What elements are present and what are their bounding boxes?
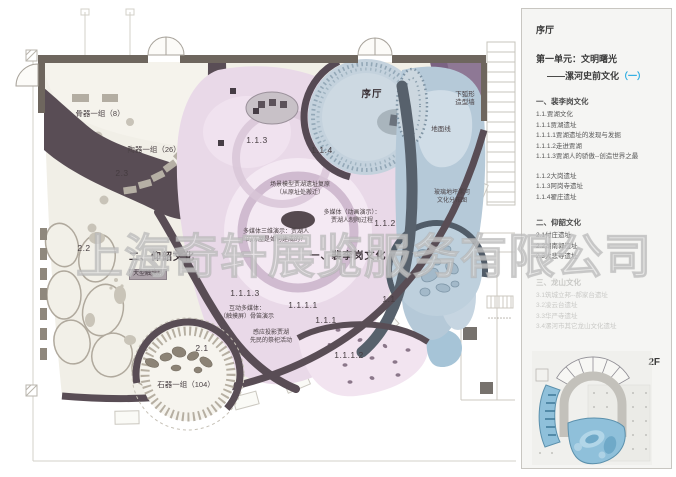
panel-subtitle-text: ——漯河史前文化 — [547, 71, 619, 81]
list-item: 1.1.贾湖文化 — [536, 110, 665, 121]
panel-unit-title: 第一单元：文明曙光 — [536, 52, 665, 65]
label-1-1-2: 1.1.2 — [374, 218, 395, 229]
label-glass-floor-map: 玻璃地坪漯河 文化分布图 — [434, 190, 470, 206]
list-item: 3.2凌云台遗址 — [536, 301, 665, 312]
section-heading: 二、仰韶文化 — [536, 217, 665, 228]
list-item: 1.1.2大岗遗址 — [536, 172, 665, 183]
label-1-1-1: 1.1.1 — [315, 315, 336, 326]
label-projection: 感应投影贾湖 先民的祭祀活动 — [250, 330, 292, 346]
label-bone-tools-group: 骨器一组（8） — [75, 109, 124, 119]
list-item: 3.1筑城立邦--郝家台遗址 — [536, 291, 665, 302]
label-multimedia-3d: 多媒体三维演示：贾湖人 的房屋是如何建成的？ — [243, 229, 309, 245]
corridor-block-1 — [463, 327, 477, 340]
list-item: 2.1付庄遗址 — [536, 231, 665, 242]
label-arc-wall: 下弧形 造型墙 — [455, 91, 475, 108]
label-yangshao-culture: 二、仰韶文化 — [129, 251, 195, 264]
list-item: 2.2湖南郭遗址 — [536, 242, 665, 253]
section-peiligang: 一、裴李岗文化 1.1.贾湖文化 1.1.1贾湖遗址 1.1.1.1贾湖遗址的发… — [536, 96, 665, 203]
minimap-2f — [530, 343, 656, 469]
minimap-small-room — [536, 369, 548, 381]
label-zone-2-3: 2.3 — [115, 168, 128, 179]
panel-subtitle-accent: （一） — [619, 71, 646, 81]
section-heading: 一、裴李岗文化 — [536, 96, 665, 107]
list-item: 1.1.1.2走进贾湖 — [536, 142, 665, 153]
corridor-dots — [488, 317, 511, 319]
section-heading: 三、龙山文化 — [536, 277, 665, 288]
stairs-right — [487, 42, 515, 205]
label-ground-line: 地面线 — [431, 126, 451, 134]
label-1-1-1-3: 1.1.1.3 — [230, 288, 260, 299]
label-scene-model: 场景模型贾湖遗址复原 （从原址处搬迁） — [270, 182, 330, 198]
label-pottery-group: 陶器一组（26） — [127, 145, 180, 155]
label-interactive-touchscreen: 互动多媒体： （触摸屏）骨笛演示 — [220, 306, 274, 322]
label-prelude-hall: 序厅 — [361, 89, 382, 101]
label-peiligang-culture: 一、裴李岗文化 — [310, 250, 387, 263]
list-item: 3.4漯河市其它龙山文化遗址 — [536, 322, 665, 333]
panel-hall-label: 序厅 — [536, 23, 665, 36]
label-zone-2-1: 2.1 — [195, 343, 208, 354]
corridor-block-2 — [480, 382, 493, 394]
label-touchscreen-box: 大型触摸屏 — [129, 269, 167, 280]
display-case-2 — [102, 94, 118, 102]
section-yangshao: 二、仰韶文化 2.1付庄遗址 2.2湖南郭遗址 2.3大悲寺遗址 — [536, 217, 665, 263]
list-item: 1.1.1.1贾湖遗址的发现与发掘 — [536, 131, 665, 142]
legend-panel: 序厅 第一单元：文明曙光 ——漯河史前文化（一） 一、裴李岗文化 1.1.贾湖文… — [521, 8, 672, 469]
label-1-1-1-2: 1.1.1.2 — [334, 350, 364, 361]
label-1-1-4: 1.1.4 — [311, 145, 332, 156]
central-exhibit — [281, 211, 315, 229]
section-longshan: 三、龙山文化 3.1筑城立邦--郝家台遗址 3.2凌云台遗址 3.3华严寺遗址 … — [536, 277, 665, 333]
list-item: 1.1.4翟庄遗址 — [536, 193, 665, 204]
label-1-1-3: 1.1.3 — [246, 135, 267, 146]
label-1-1-1-1: 1.1.1.1 — [288, 300, 318, 311]
display-case-1 — [72, 94, 89, 102]
label-stone-tools-group: 石器一组（104） — [157, 380, 215, 390]
label-1-1: 1.1 — [382, 294, 395, 305]
list-item: 1.1.1贾湖遗址 — [536, 121, 665, 132]
list-item: 3.3华严寺遗址 — [536, 312, 665, 323]
list-item: 1.1.3阿岗寺遗址 — [536, 182, 665, 193]
label-zone-2-2: 2.2 — [77, 243, 90, 254]
list-item: 1.1.1.3贾湖人的骄傲--创造世界之最 — [536, 152, 665, 163]
floor-plan: 骨器一组（8） 陶器一组（26） 2.3 2.2 二、仰韶文化 大型触摸屏 2.… — [0, 0, 520, 477]
label-multimedia-animation: 多媒体（动画演示）： 贾湖人制陶过程 — [323, 210, 380, 226]
list-item: 2.3大悲寺遗址 — [536, 252, 665, 263]
panel-unit-subtitle: ——漯河史前文化（一） — [547, 69, 665, 82]
exhibition-plan-page: 骨器一组（8） 陶器一组（26） 2.3 2.2 二、仰韶文化 大型触摸屏 2.… — [0, 0, 676, 477]
hatch-corner-symbols — [26, 50, 37, 396]
